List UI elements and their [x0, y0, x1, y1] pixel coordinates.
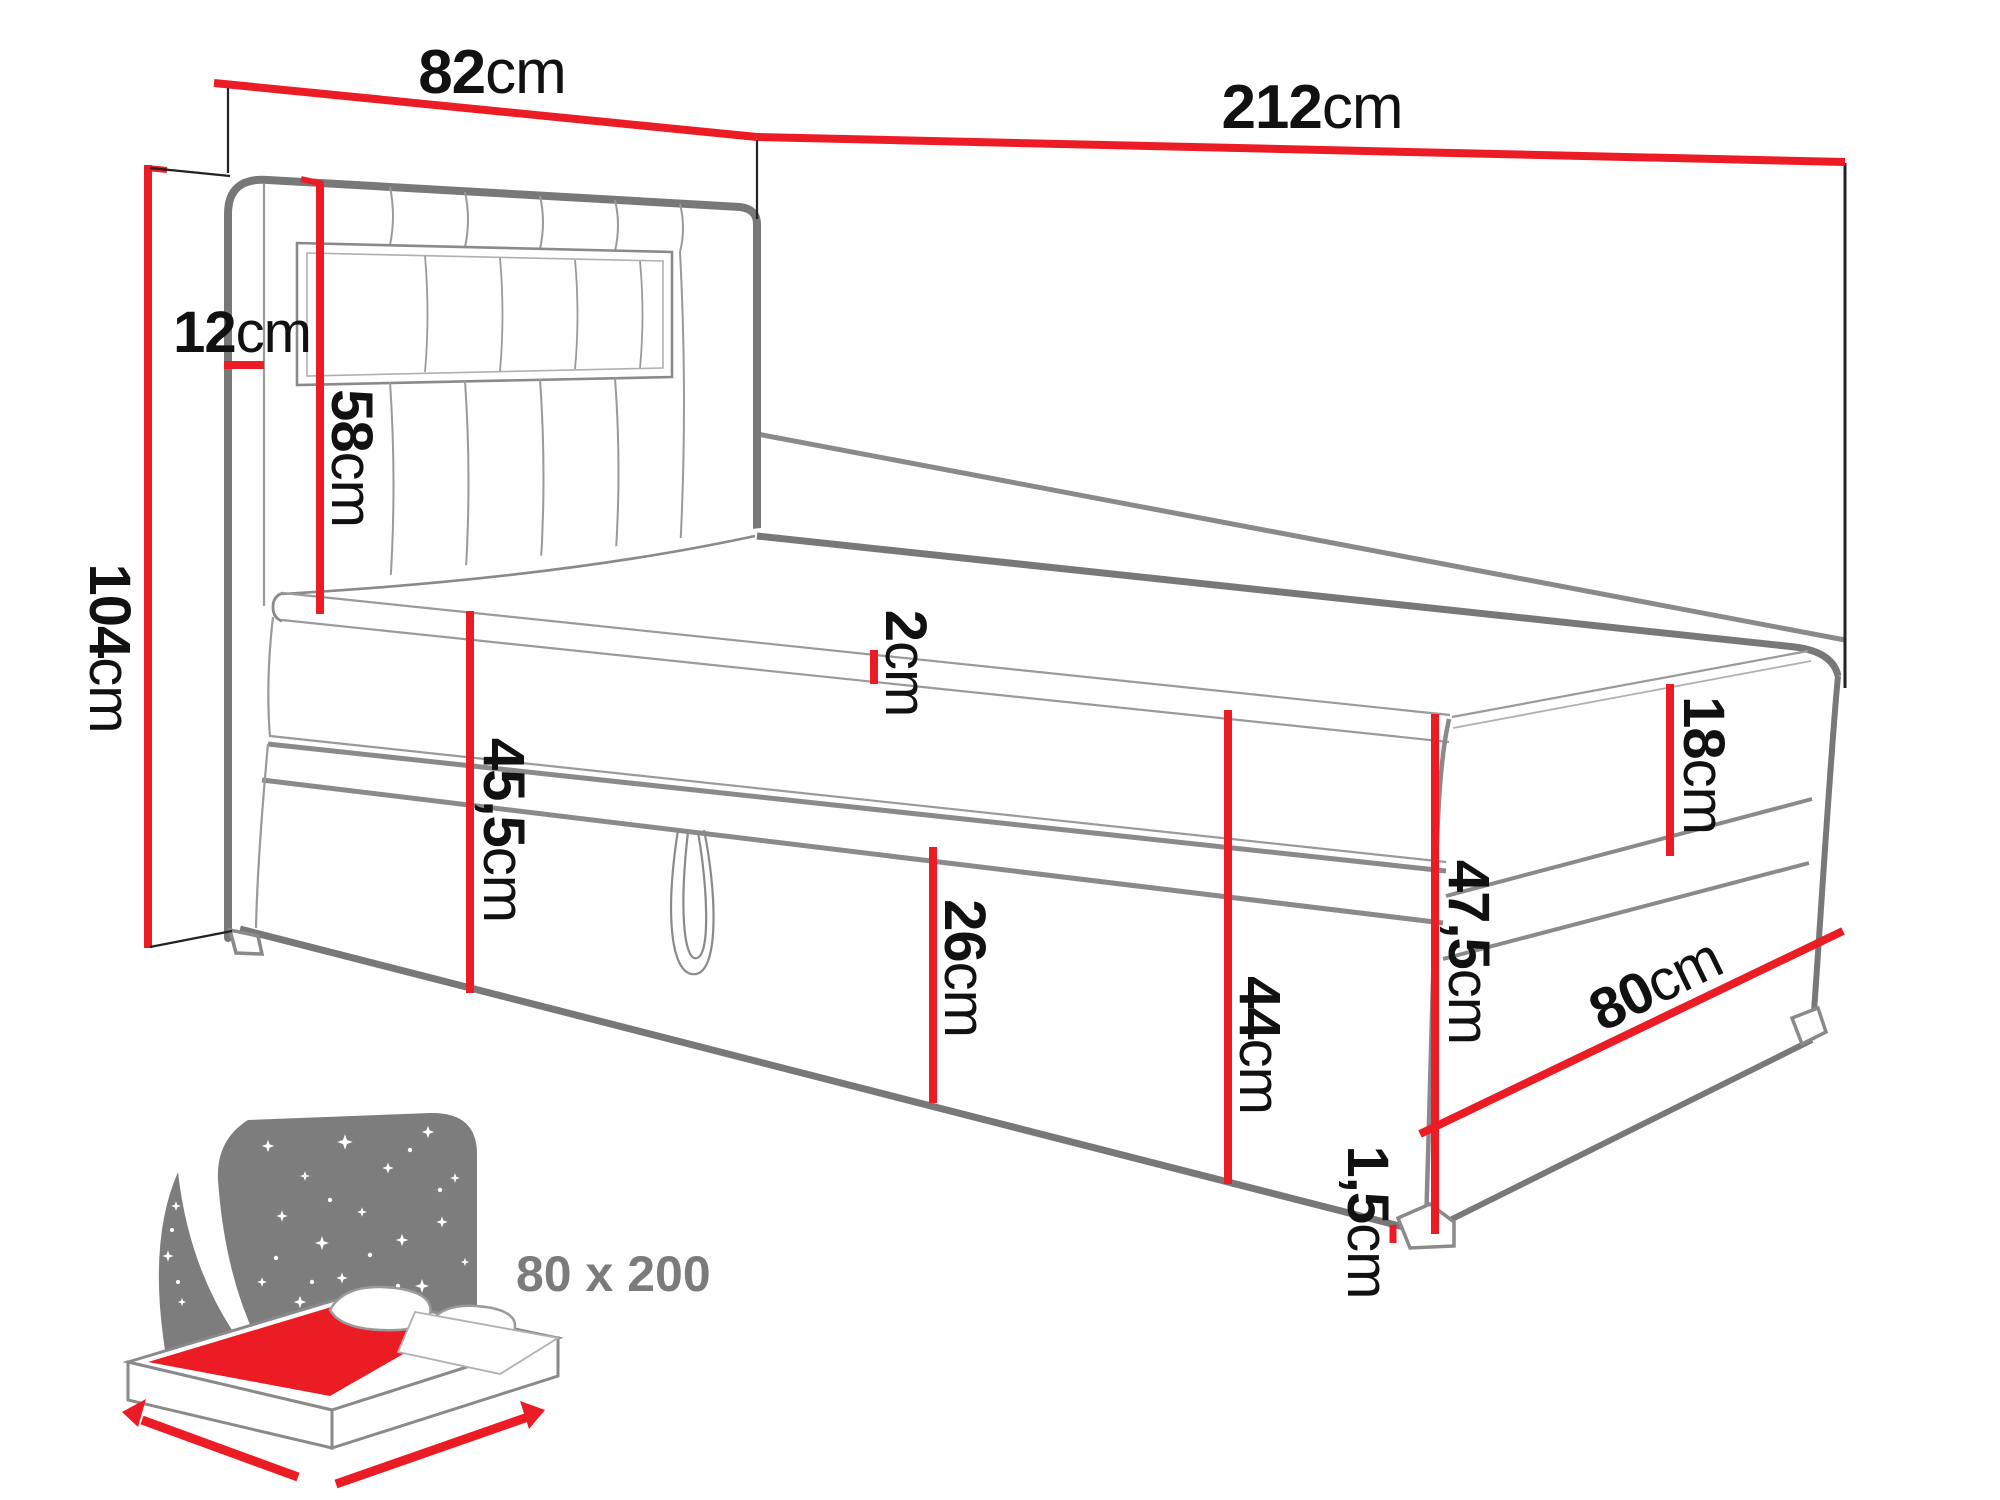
dim-label-47-5cm: 47,5cm [1436, 860, 1501, 1044]
ext-line-104-bottom [150, 931, 232, 947]
dim-label-44cm: 44cm [1227, 976, 1292, 1114]
dim-label-2cm: 2cm [873, 610, 938, 717]
bed-dimension-diagram: 82cm 212cm 104cm 12cm 58cm 2cm 45,5cm 26… [0, 0, 2000, 1500]
dim-label-1-5cm: 1,5cm [1335, 1146, 1400, 1299]
diagram-canvas: 82cm 212cm 104cm 12cm 58cm 2cm 45,5cm 26… [0, 0, 2000, 1500]
dim-label-82cm: 82cm [418, 38, 566, 107]
icon-size-label: 80 x 200 [516, 1246, 711, 1302]
bed-size-icon: 80 x 200 [0, 1113, 711, 1484]
headboard-inset-panel [297, 243, 672, 385]
dim-label-212cm: 212cm [1221, 73, 1402, 142]
dim-label-104cm: 104cm [77, 563, 142, 732]
dim-label-18cm: 18cm [1671, 696, 1736, 834]
dim-label-26cm: 26cm [932, 899, 997, 1037]
dim-label-58cm: 58cm [319, 389, 384, 527]
panel-outer-border [297, 243, 672, 385]
dim-label-12cm: 12cm [173, 300, 311, 365]
dim-label-45-5cm: 45,5cm [471, 738, 536, 922]
